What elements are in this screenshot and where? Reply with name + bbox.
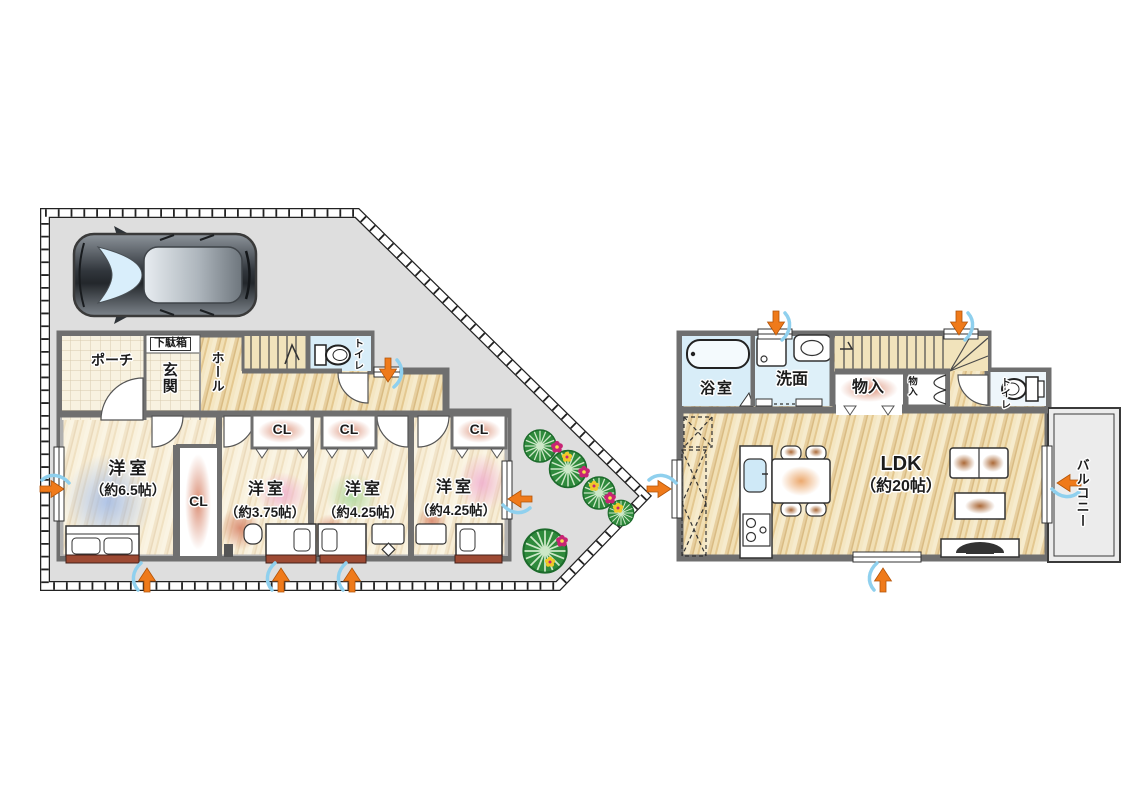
label-closet-2: CL: [267, 422, 297, 437]
floor2-building: [672, 329, 1120, 562]
label-bedroom2-name: 洋室: [227, 482, 307, 499]
label-bedroom4-name: 洋室: [415, 480, 495, 497]
label-washroom: 洗面: [762, 372, 822, 389]
bed-single-room3: [318, 524, 404, 556]
label-bedroom1-name: 洋室: [87, 460, 172, 478]
floor1-building: [54, 334, 512, 563]
label-bedroom4-size: （約4.25帖）: [396, 504, 516, 518]
label-porch: ポーチ: [84, 353, 140, 368]
label-ldk-size: （約20帖）: [841, 479, 961, 496]
kitchen: [740, 446, 772, 558]
label-toilet-2f: トイレ: [998, 377, 1009, 410]
label-hall: ホール: [210, 351, 224, 393]
label-bedroom3-name: 洋室: [324, 482, 404, 499]
floorplan-page: ポーチ 下駄箱 玄関 ホール トイレ 洋室 （約6.5帖） CL CL CL C…: [0, 0, 1131, 800]
label-balcony: バルコニー: [1075, 458, 1089, 528]
label-storage: 物入: [838, 380, 898, 397]
label-toilet-1f: トイレ: [351, 338, 362, 371]
label-closet-4: CL: [464, 422, 494, 437]
label-bath: 浴室: [687, 381, 747, 397]
bed-double: [66, 526, 139, 556]
label-storage-small: 物入: [906, 376, 916, 397]
label-ldk-name: LDK: [851, 454, 951, 475]
car-top-view: [74, 226, 256, 324]
label-entrance: 玄関: [161, 362, 177, 394]
label-bedroom1-size: （約6.5帖）: [68, 483, 188, 498]
floorplan-canvas: [0, 0, 1131, 800]
label-closet-3: CL: [334, 422, 364, 437]
label-shoe-cabinet: 下駄箱: [150, 337, 191, 351]
